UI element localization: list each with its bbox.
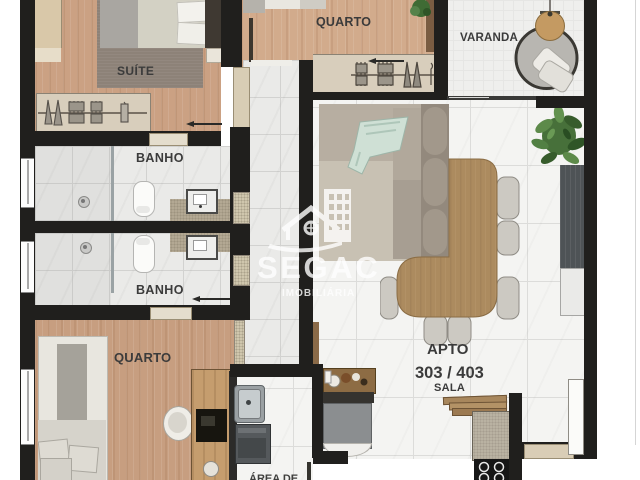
svg-text:IMOBILIÁRIA: IMOBILIÁRIA — [282, 286, 355, 299]
svg-text:SEGAC: SEGAC — [257, 250, 380, 285]
